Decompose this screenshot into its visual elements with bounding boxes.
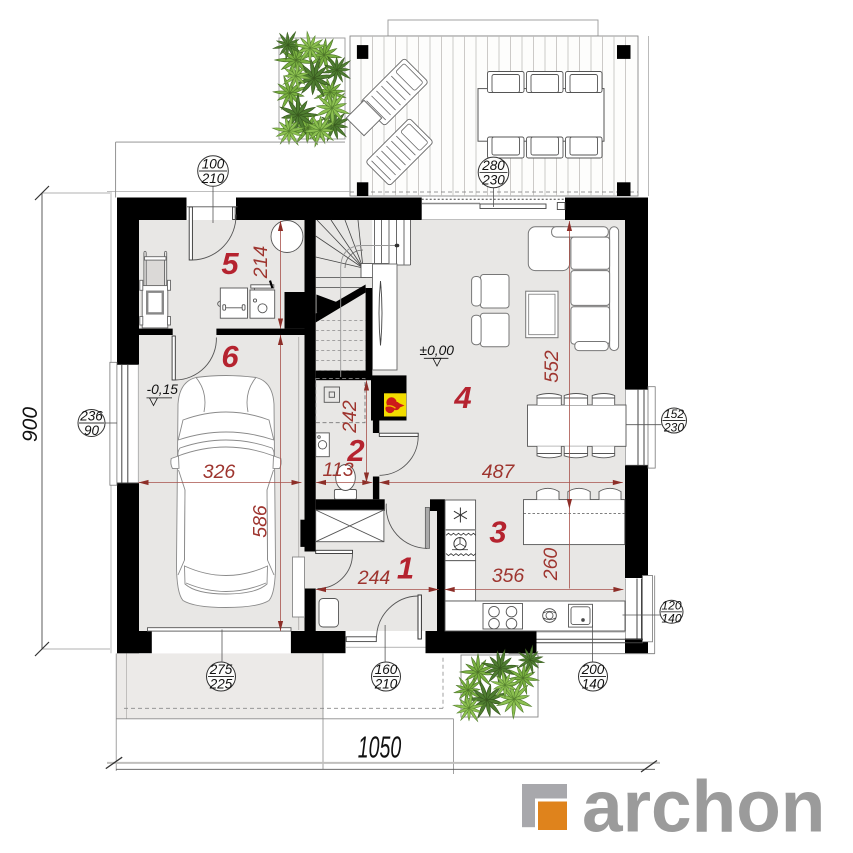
svg-text:2: 2 xyxy=(346,433,364,468)
svg-text:-0,15: -0,15 xyxy=(147,382,179,397)
svg-text:487: 487 xyxy=(482,461,516,483)
svg-text:260: 260 xyxy=(540,548,562,582)
svg-text:552: 552 xyxy=(541,350,563,383)
svg-text:140: 140 xyxy=(582,677,605,692)
svg-text:225: 225 xyxy=(209,677,233,692)
svg-text:1050: 1050 xyxy=(358,731,402,765)
svg-text:archon: archon xyxy=(582,767,825,848)
svg-text:242: 242 xyxy=(339,400,361,434)
svg-text:140: 140 xyxy=(661,612,681,626)
svg-text:900: 900 xyxy=(19,407,42,442)
svg-text:230: 230 xyxy=(481,173,505,188)
svg-text:326: 326 xyxy=(203,461,236,483)
svg-text:275: 275 xyxy=(209,662,233,677)
svg-text:210: 210 xyxy=(374,677,398,692)
svg-text:356: 356 xyxy=(492,565,525,587)
svg-text:5: 5 xyxy=(221,246,239,281)
svg-text:210: 210 xyxy=(201,171,225,186)
svg-text:200: 200 xyxy=(581,662,605,677)
svg-text:100: 100 xyxy=(202,157,225,172)
svg-text:280: 280 xyxy=(481,158,505,173)
svg-text:214: 214 xyxy=(250,246,272,280)
svg-text:±0,00: ±0,00 xyxy=(420,343,455,358)
svg-text:160: 160 xyxy=(375,662,398,677)
svg-text:586: 586 xyxy=(250,505,272,538)
svg-text:6: 6 xyxy=(221,339,239,374)
svg-text:244: 244 xyxy=(357,567,391,589)
svg-text:90: 90 xyxy=(84,423,100,438)
svg-text:120: 120 xyxy=(661,599,681,613)
svg-text:152: 152 xyxy=(664,407,684,421)
svg-text:236: 236 xyxy=(79,409,103,424)
svg-text:4: 4 xyxy=(453,380,471,415)
svg-text:1: 1 xyxy=(397,551,414,586)
svg-text:230: 230 xyxy=(663,421,684,435)
svg-text:3: 3 xyxy=(489,515,506,550)
